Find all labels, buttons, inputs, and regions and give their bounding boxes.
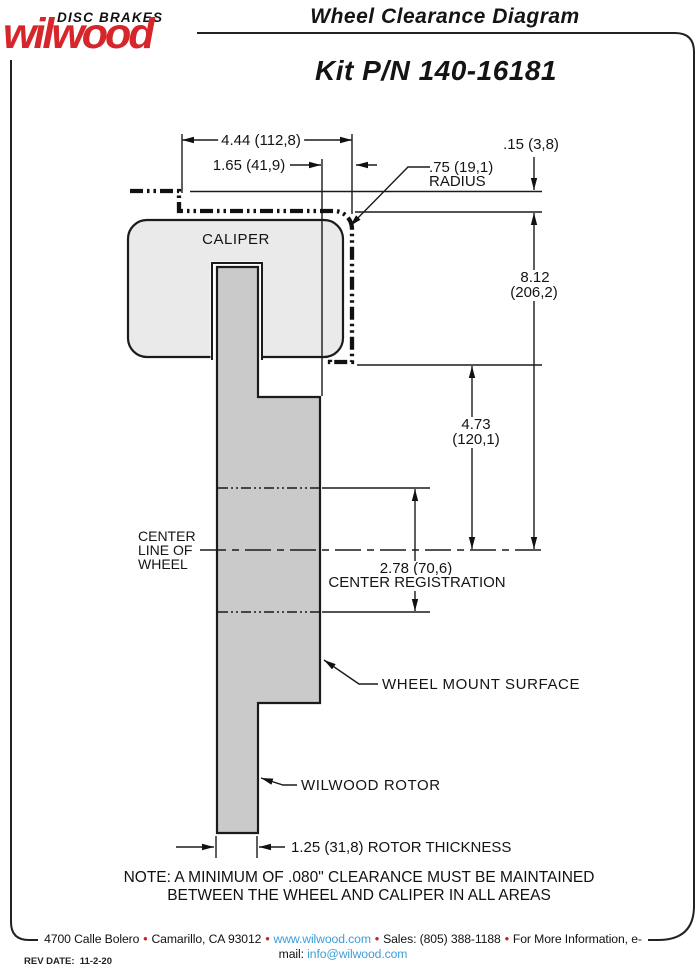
clearance-note-line1: NOTE: A MINIMUM OF .080" CLEARANCE MUST … [124, 870, 595, 886]
footer-bullet-3: • [375, 932, 379, 946]
dim-4-44-label: 4.44 (112,8) [218, 133, 304, 149]
rotor-thickness-label: 1.25 (31,8) ROTOR THICKNESS [291, 840, 511, 856]
radius-leader [350, 167, 430, 226]
footer-contact-line: 4700 Calle Bolero•Camarillo, CA 93012•ww… [40, 932, 646, 962]
clearance-note-line2: BETWEEN THE WHEEL AND CALIPER IN ALL ARE… [167, 888, 551, 904]
radius-word-label: RADIUS [429, 174, 486, 190]
dim-8-12-mm-label: (206,2) [507, 285, 561, 301]
diagram-canvas [0, 0, 700, 973]
caliper-label: CALIPER [202, 232, 270, 248]
kit-part-number: Kit P/N 140-16181 [315, 56, 557, 85]
rotor-leader [261, 778, 297, 785]
page-title: Wheel Clearance Diagram [310, 6, 579, 28]
wheel-mount-surface-label: WHEEL MOUNT SURFACE [382, 677, 580, 693]
centerline-label-3: WHEEL [138, 557, 188, 572]
wheel-mount-leader [324, 660, 378, 684]
dim-0-15-label: .15 (3,8) [503, 137, 559, 153]
frame-border-left-bottom [11, 60, 38, 940]
footer-bullet-4: • [505, 932, 509, 946]
footer-address: 4700 Calle Bolero [44, 932, 139, 946]
center-registration-text-label: CENTER REGISTRATION [325, 575, 508, 591]
footer-email-link[interactable]: info@wilwood.com [307, 947, 407, 961]
wilwood-rotor-label: WILWOOD ROTOR [301, 778, 441, 794]
footer-sales: Sales: (805) 388-1188 [383, 932, 501, 946]
wheel-clearance-sheet: DISC BRAKES wilwood Wheel Clearance Diag… [0, 0, 700, 973]
brand-wilwood-wordmark: wilwood [3, 12, 152, 57]
dim-4-73-mm-label: (120,1) [449, 432, 503, 448]
footer-bullet-1: • [143, 932, 147, 946]
footer-bullet-2: • [265, 932, 269, 946]
rev-date: REV DATE: 11-2-20 [24, 956, 112, 967]
dim-1-65-label: 1.65 (41,9) [213, 158, 286, 174]
footer-website-link[interactable]: www.wilwood.com [274, 932, 371, 946]
footer-city: Camarillo, CA 93012 [151, 932, 261, 946]
